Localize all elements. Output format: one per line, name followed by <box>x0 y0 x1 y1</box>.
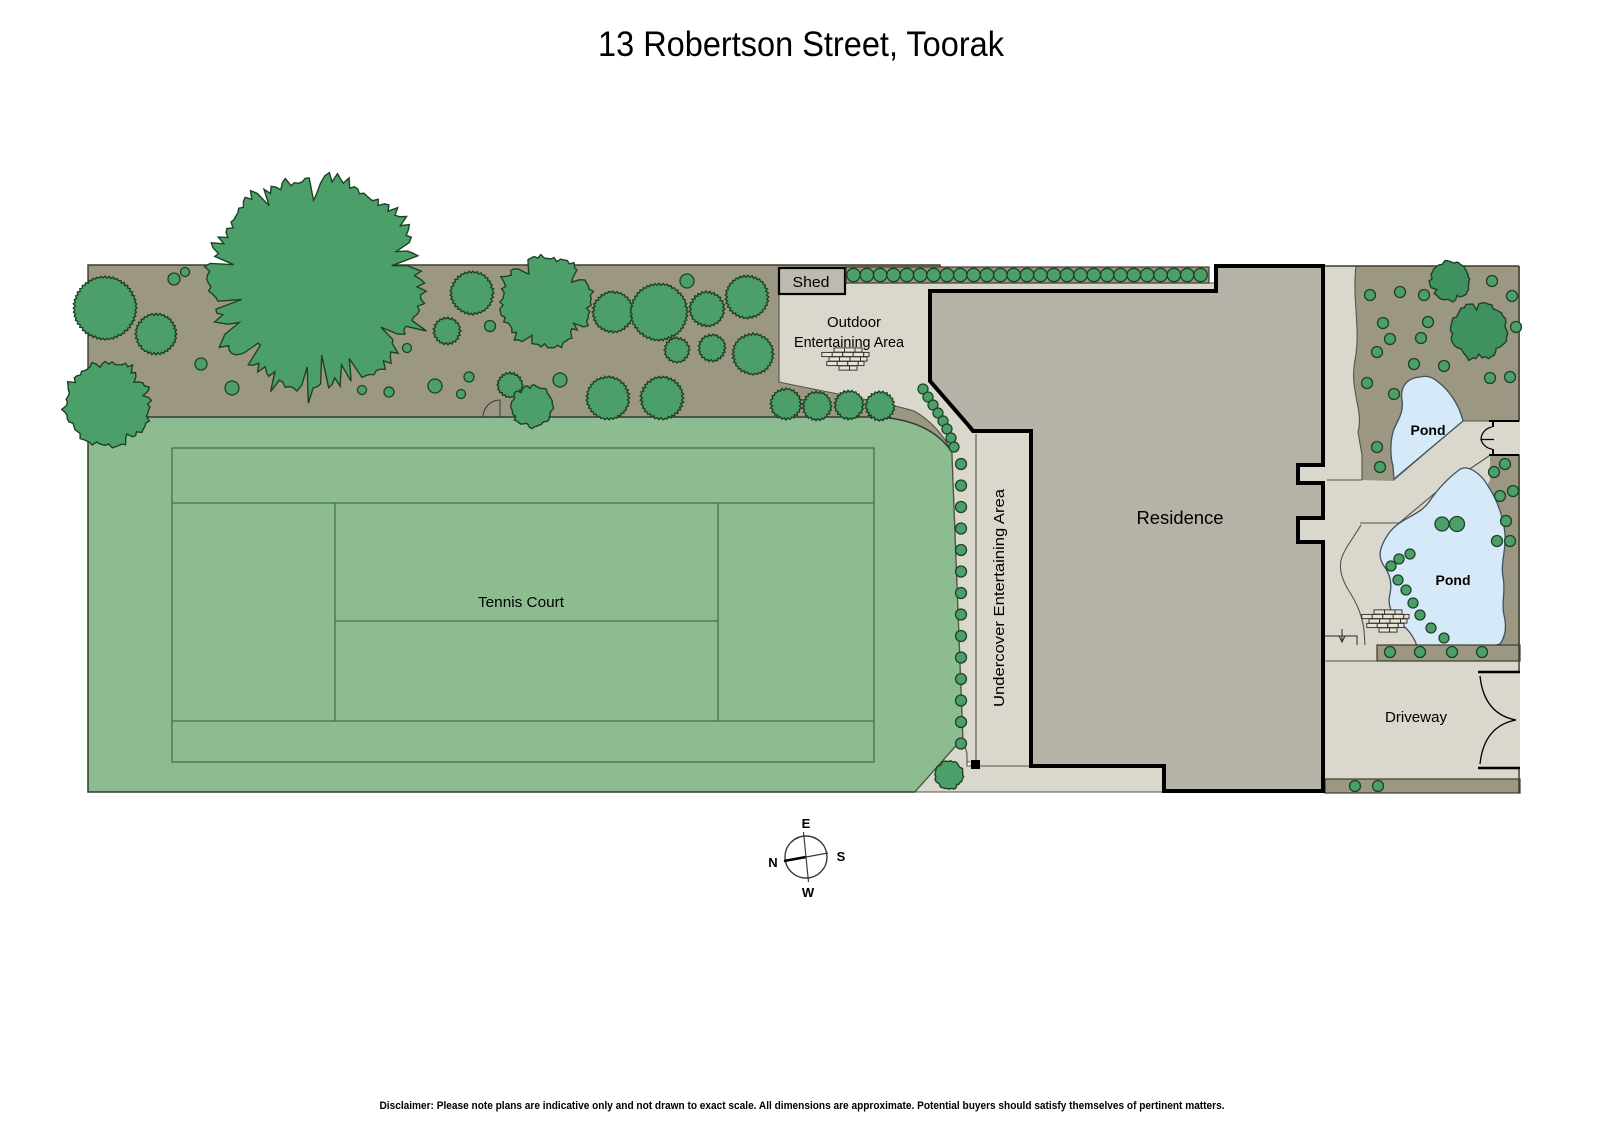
svg-text:E: E <box>802 816 811 831</box>
svg-text:Pond: Pond <box>1411 423 1446 438</box>
svg-text:13 Robertson Street, Toorak: 13 Robertson Street, Toorak <box>598 25 1004 64</box>
svg-text:Tennis Court: Tennis Court <box>478 594 565 611</box>
svg-text:Undercover Entertaining Area: Undercover Entertaining Area <box>992 488 1008 707</box>
svg-text:S: S <box>837 849 846 864</box>
svg-text:Disclaimer: Please note plans: Disclaimer: Please note plans are indica… <box>380 1100 1225 1112</box>
svg-text:Outdoor: Outdoor <box>827 315 881 331</box>
svg-text:N: N <box>768 855 777 870</box>
svg-text:Shed: Shed <box>793 275 830 291</box>
svg-text:Residence: Residence <box>1137 508 1224 528</box>
svg-text:Driveway: Driveway <box>1385 709 1447 726</box>
svg-text:W: W <box>802 885 815 900</box>
svg-text:Entertaining Area: Entertaining Area <box>794 335 905 351</box>
svg-text:Pond: Pond <box>1436 573 1471 588</box>
